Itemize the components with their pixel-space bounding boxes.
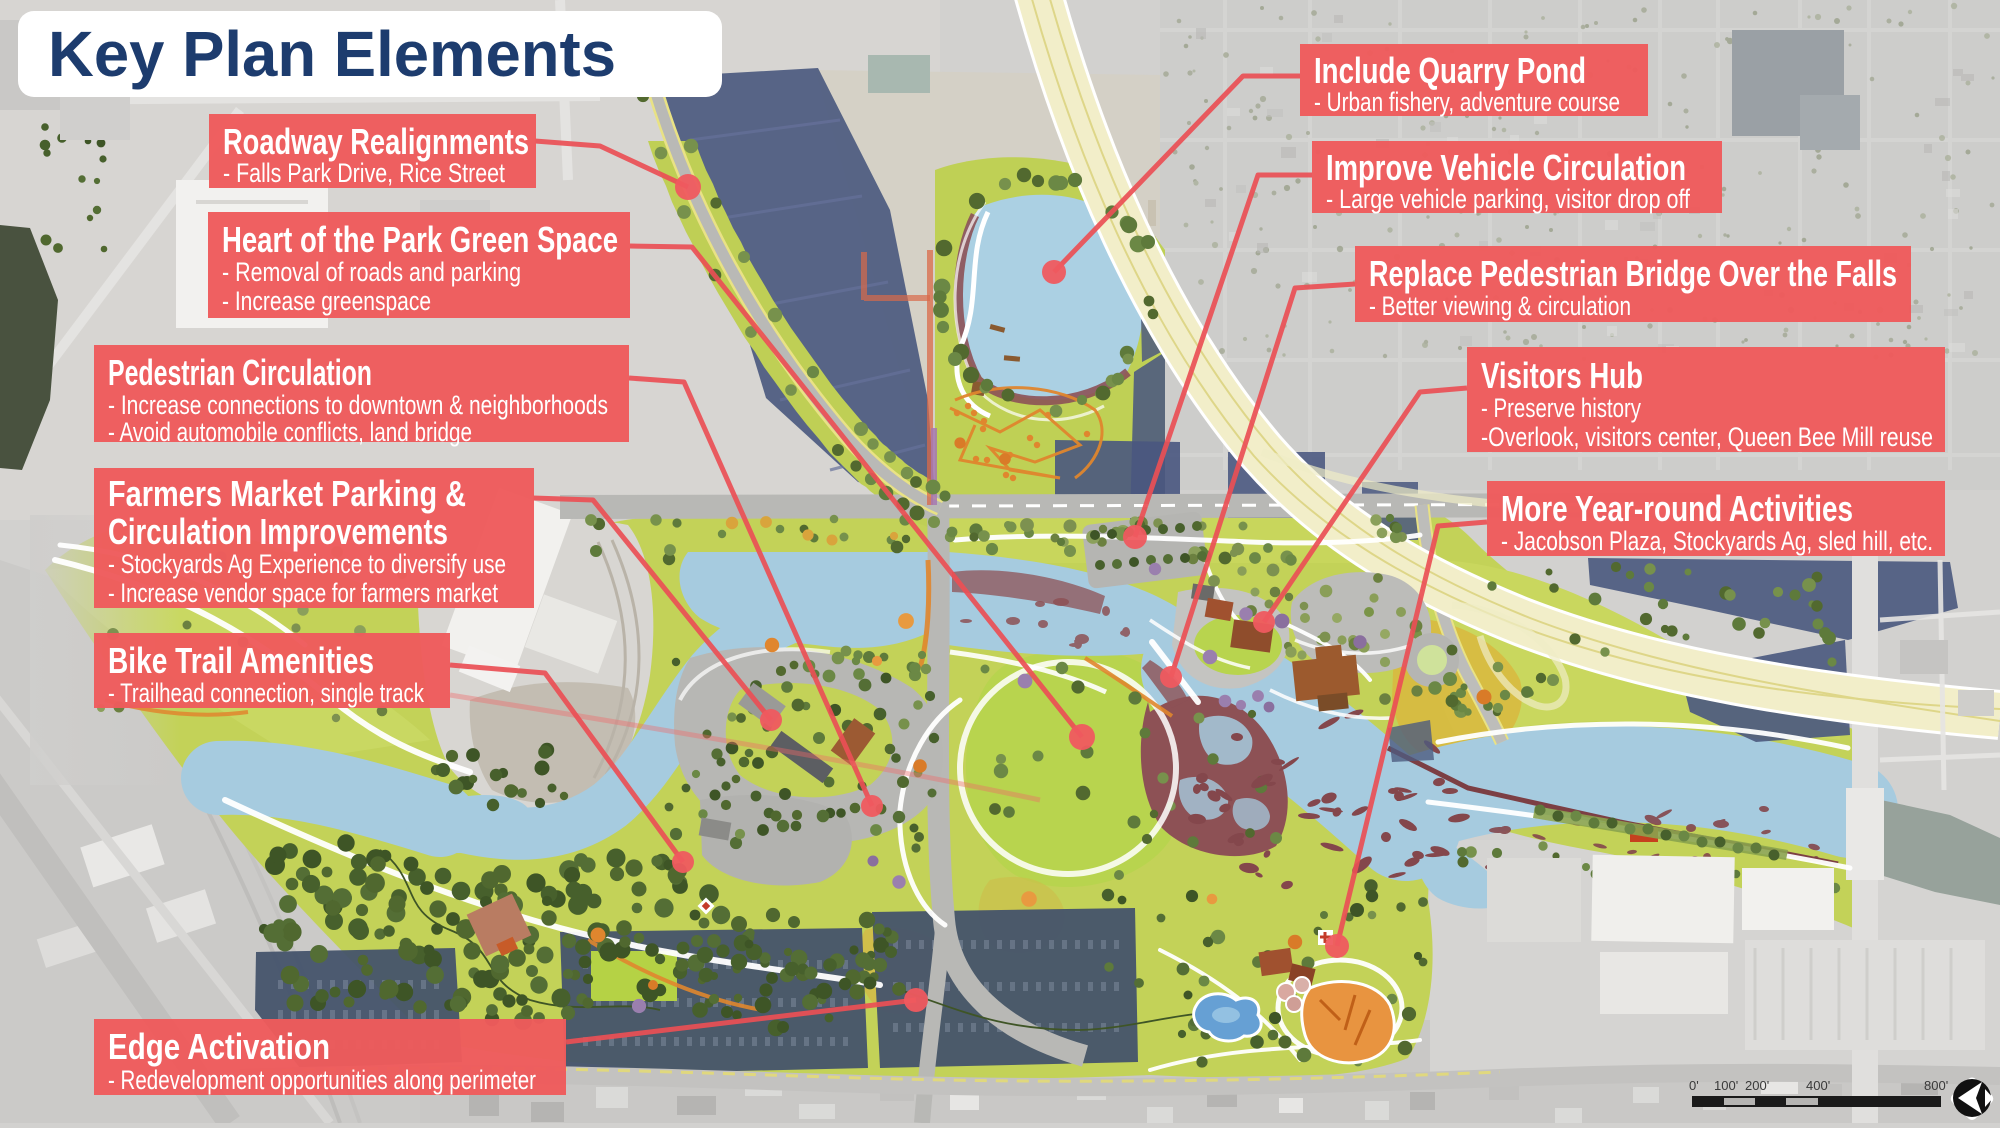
svg-text:400': 400' [1806, 1078, 1830, 1093]
svg-text:Heart of the Park Green Space: Heart of the Park Green Space [222, 219, 618, 260]
svg-text:- Better viewing & circulation: - Better viewing & circulation [1369, 291, 1631, 321]
svg-text:Bike Trail Amenities: Bike Trail Amenities [108, 640, 374, 681]
svg-text:- Urban fishery, adventure cou: - Urban fishery, adventure course [1314, 87, 1620, 117]
svg-text:-Overlook, visitors center, Qu: -Overlook, visitors center, Queen Bee Mi… [1481, 422, 1933, 452]
svg-text:- Jacobson Plaza, Stockyards A: - Jacobson Plaza, Stockyards Ag, sled hi… [1501, 526, 1933, 556]
svg-text:- Avoid automobile conflicts,: - Avoid automobile conflicts, land bridg… [108, 417, 472, 447]
svg-text:Edge Activation: Edge Activation [108, 1026, 330, 1067]
svg-text:200': 200' [1745, 1078, 1769, 1093]
svg-text:- Stockyards Ag Experience to: - Stockyards Ag Experience to diversify … [108, 549, 506, 579]
svg-text:0': 0' [1689, 1078, 1699, 1093]
svg-text:Farmers Market Parking &: Farmers Market Parking & [108, 473, 466, 514]
svg-text:100': 100' [1714, 1078, 1738, 1093]
svg-text:- Increase greenspace: - Increase greenspace [222, 286, 431, 316]
svg-text:More Year-round Activities: More Year-round Activities [1501, 488, 1853, 529]
svg-text:Include Quarry Pond: Include Quarry Pond [1314, 50, 1586, 91]
svg-text:Roadway Realignments: Roadway Realignments [223, 121, 529, 162]
svg-text:800': 800' [1924, 1078, 1948, 1093]
svg-text:Visitors Hub: Visitors Hub [1481, 355, 1643, 396]
svg-text:- Redevelopment opportunities: - Redevelopment opportunities along peri… [108, 1065, 536, 1095]
svg-text:- Increase connections to down: - Increase connections to downtown & nei… [108, 390, 608, 420]
svg-text:Circulation Improvements: Circulation Improvements [108, 511, 448, 552]
svg-text:- Trailhead connection, single: - Trailhead connection, single track [108, 678, 424, 708]
svg-text:- Removal of roads and parking: - Removal of roads and parking [222, 257, 521, 287]
svg-text:Key Plan Elements: Key Plan Elements [48, 18, 616, 90]
svg-text:- Preserve history: - Preserve history [1481, 393, 1641, 423]
svg-text:- Falls Park Drive, Rice Stree: - Falls Park Drive, Rice Street [223, 158, 505, 188]
svg-text:Pedestrian Circulation: Pedestrian Circulation [108, 352, 372, 393]
svg-text:Replace Pedestrian Bridge Over: Replace Pedestrian Bridge Over the Falls [1369, 253, 1897, 294]
svg-text:- Increase vendor space for fa: - Increase vendor space for farmers mark… [108, 578, 498, 608]
svg-text:- Large vehicle parking, visit: - Large vehicle parking, visitor drop of… [1326, 184, 1690, 214]
svg-text:Improve Vehicle Circulation: Improve Vehicle Circulation [1326, 147, 1686, 188]
